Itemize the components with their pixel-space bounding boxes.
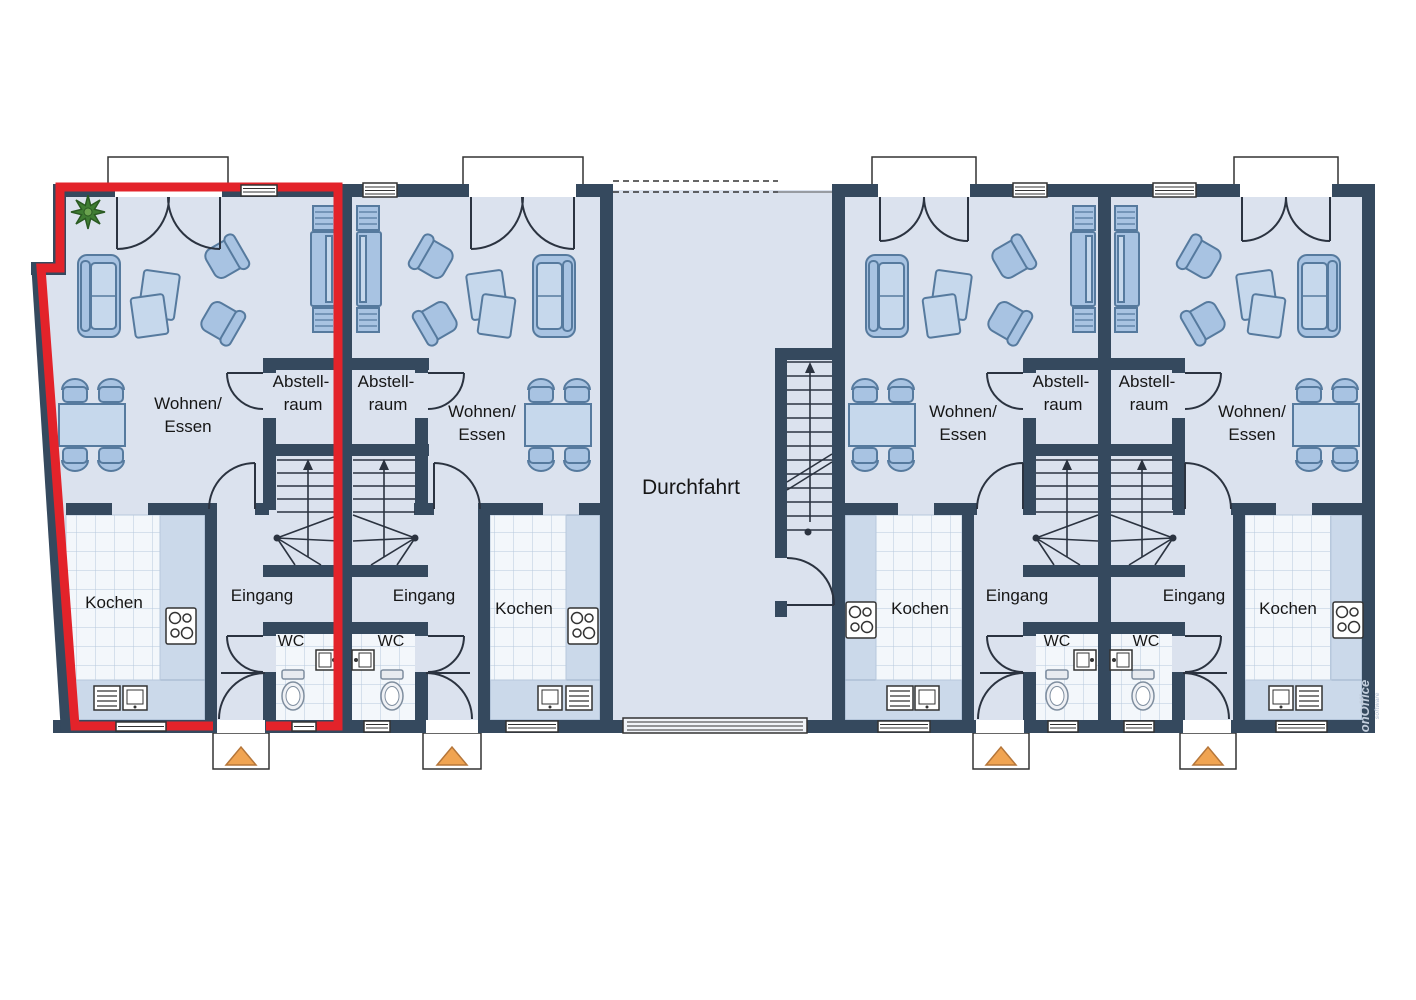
entrance-arrow-icon xyxy=(226,747,1223,765)
unit-4-stove xyxy=(1333,602,1363,638)
watermark: onOffice software xyxy=(1357,680,1381,733)
entrance-label: Eingang xyxy=(231,586,293,605)
wc-label: WC xyxy=(378,633,405,650)
entrance-label: Eingang xyxy=(1163,586,1225,605)
unit-1-kitchen-sink xyxy=(123,686,147,710)
kitchen-label: Kochen xyxy=(85,593,143,612)
unit-3-sideboard xyxy=(1071,206,1095,332)
unit-3-toilet xyxy=(1046,670,1068,710)
unit-4-dishwasher xyxy=(1296,686,1322,710)
living-room-label: Wohnen/ xyxy=(154,394,222,413)
unit-3-kitchen-sink xyxy=(915,686,939,710)
unit-4-toilet xyxy=(1132,670,1154,710)
wc-label: WC xyxy=(278,633,305,650)
unit-2-kitchen-sink xyxy=(538,686,562,710)
kitchen-label: Kochen xyxy=(1259,599,1317,618)
wc-label: WC xyxy=(1044,633,1071,650)
unit-4-wc-sink xyxy=(1110,650,1132,670)
unit-4-sofa xyxy=(1298,255,1340,337)
living-room-label: Essen xyxy=(458,425,505,444)
storage-room-label: Abstell- xyxy=(273,372,330,391)
entrance-label: Eingang xyxy=(986,586,1048,605)
living-room-label: Essen xyxy=(1228,425,1275,444)
unit-4-terrace xyxy=(1234,157,1338,187)
kitchen-label: Kochen xyxy=(495,599,553,618)
passage-label: Durchfahrt xyxy=(642,476,740,499)
unit-2-sideboard xyxy=(357,206,381,332)
living-room-label: Wohnen/ xyxy=(448,402,516,421)
unit-3-dishwasher xyxy=(887,686,913,710)
kitchen-label: Kochen xyxy=(891,599,949,618)
unit-2-dishwasher xyxy=(566,686,592,710)
unit-2-toilet xyxy=(381,670,403,710)
unit-2-wc-sink xyxy=(352,650,374,670)
storage-room-label: raum xyxy=(1130,395,1169,414)
unit-4-kitchen-sink xyxy=(1269,686,1293,710)
unit-2-stove xyxy=(568,608,598,644)
watermark-brand: onOffice xyxy=(1357,680,1372,733)
unit-1-stove xyxy=(166,608,196,644)
unit-2-sofa xyxy=(533,255,575,337)
living-room-label: Wohnen/ xyxy=(1218,402,1286,421)
living-room-label: Essen xyxy=(939,425,986,444)
unit-3-wc-sink xyxy=(1074,650,1096,670)
entrance-label: Eingang xyxy=(393,586,455,605)
wc-label: WC xyxy=(1133,633,1160,650)
unit-1-sofa xyxy=(78,255,120,337)
storage-room-label: raum xyxy=(369,395,408,414)
watermark-sub: software xyxy=(1374,692,1381,719)
storage-room-label: Abstell- xyxy=(358,372,415,391)
unit-4-sideboard xyxy=(1115,206,1139,332)
living-room-label: Wohnen/ xyxy=(929,402,997,421)
floor-plan: Wohnen/ Essen Abstell- raum Kochen Einga… xyxy=(0,0,1416,1000)
unit-1-dishwasher xyxy=(94,686,120,710)
unit-1-sideboard xyxy=(311,206,335,332)
unit-2-terrace xyxy=(463,157,583,187)
storage-room-label: Abstell- xyxy=(1119,372,1176,391)
storage-room-label: raum xyxy=(284,395,323,414)
unit-1-toilet xyxy=(282,670,304,710)
storage-room-label: Abstell- xyxy=(1033,372,1090,391)
unit-3-stove xyxy=(846,602,876,638)
passage-gate xyxy=(623,718,807,733)
plant-icon xyxy=(71,195,105,229)
living-room-label: Essen xyxy=(164,417,211,436)
unit-3-terrace xyxy=(872,157,976,187)
storage-room-label: raum xyxy=(1044,395,1083,414)
unit-3-sofa xyxy=(866,255,908,337)
